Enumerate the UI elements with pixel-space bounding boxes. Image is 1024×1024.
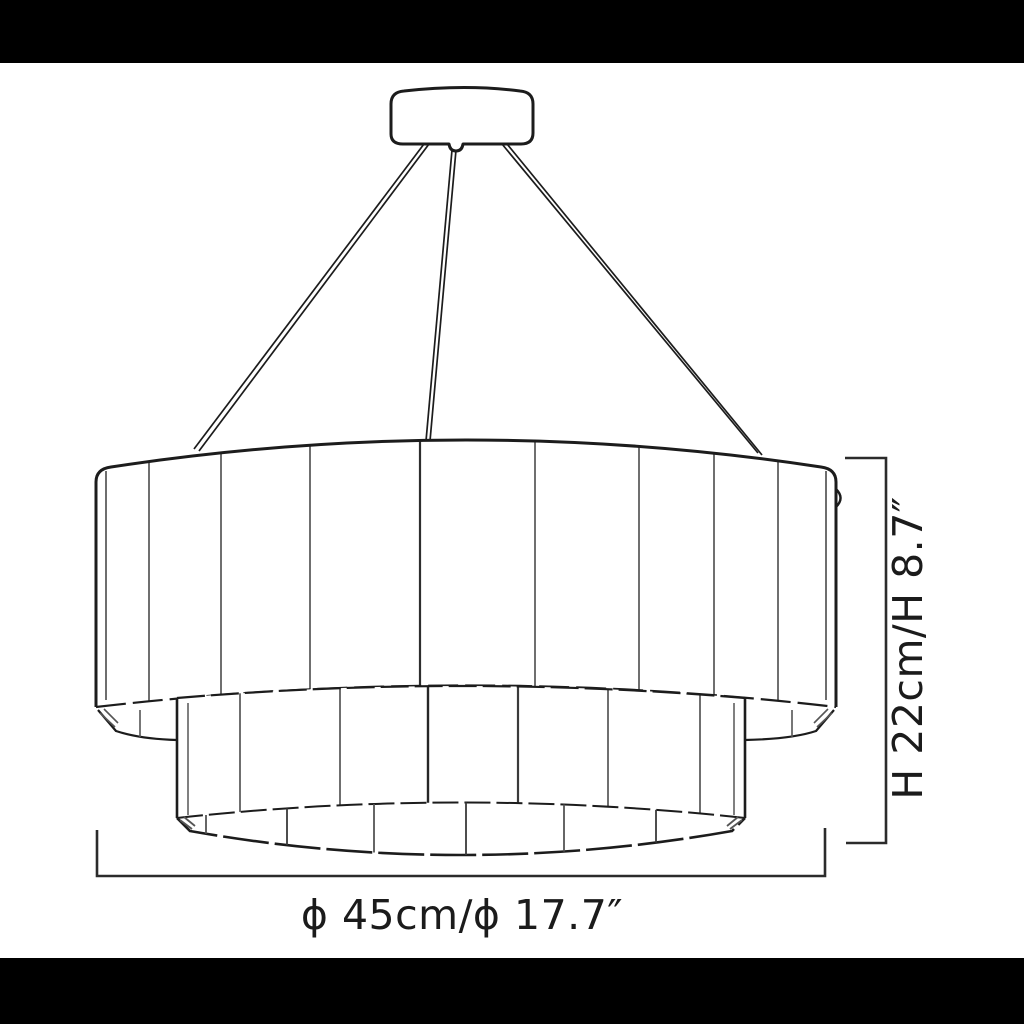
letterbox-bottom: [0, 958, 1024, 1024]
suspension-cable-center: [426, 150, 456, 441]
height-dimension-line: [845, 458, 886, 843]
ceiling-canopy: [391, 88, 533, 152]
chandelier-dimension-diagram: ϕ 45cm/ϕ 17.7″ H 22cm/H 8.7″: [0, 0, 1024, 1024]
height-label: H 22cm/H 8.7″: [884, 496, 932, 799]
suspension-cable-right: [502, 144, 762, 455]
height-dimension: H 22cm/H 8.7″: [845, 458, 932, 843]
diameter-label: ϕ 45cm/ϕ 17.7″: [301, 891, 623, 939]
suspension-cables: [194, 144, 762, 455]
upper-drum-wall: [96, 440, 836, 707]
suspension-cable-left: [194, 144, 429, 451]
letterbox-top: [0, 0, 1024, 63]
lower-drum: [177, 686, 745, 855]
diagram-page: ϕ 45cm/ϕ 17.7″ H 22cm/H 8.7″: [0, 0, 1024, 1024]
lower-drum-wall: [177, 686, 745, 855]
upper-drum-bottom-band-right: [745, 710, 834, 740]
